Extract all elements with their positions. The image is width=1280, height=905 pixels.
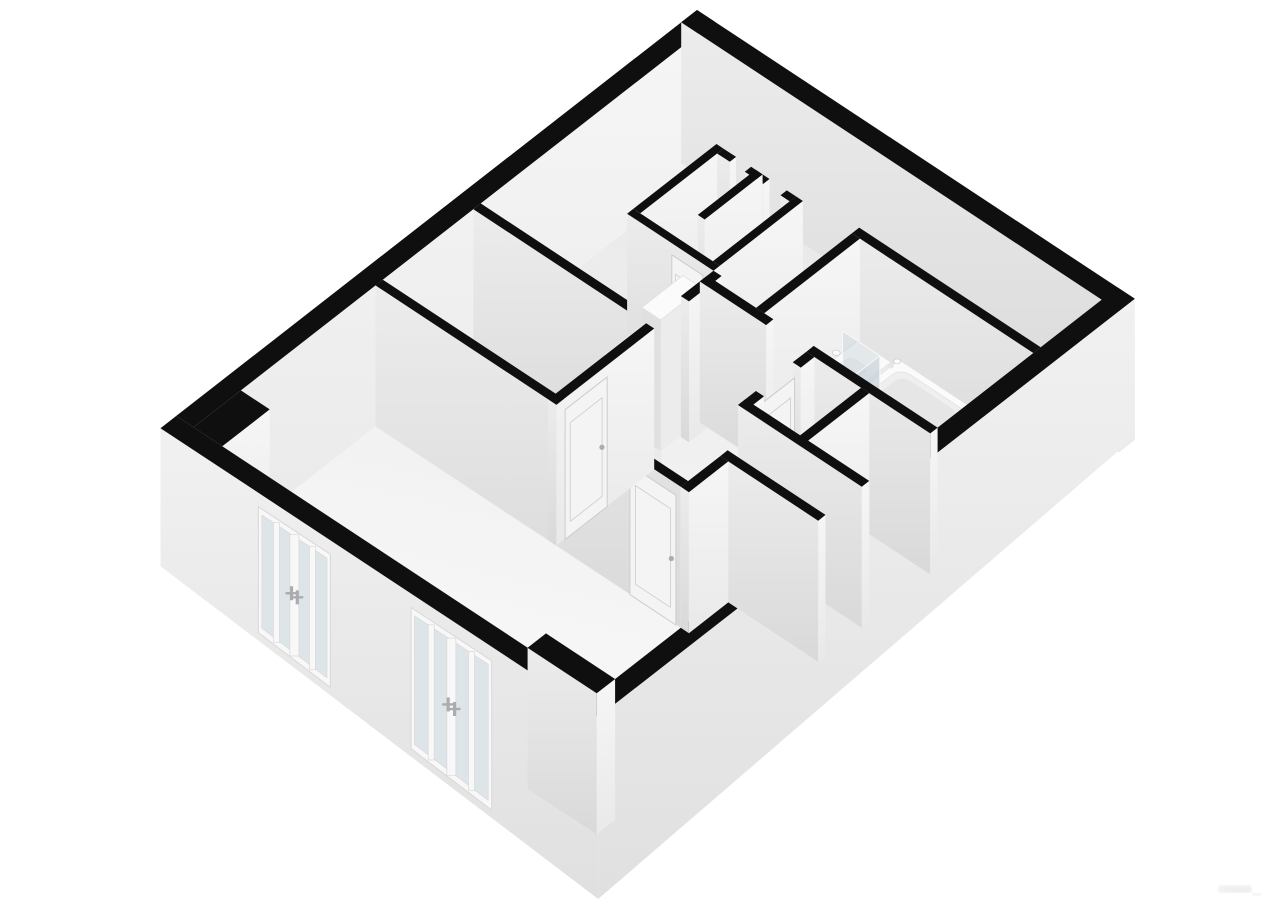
floorplan-render: 3D floor plan rendering of an apartment — [0, 0, 1280, 905]
floorplan-3d-svg: 3D floor plan rendering of an apartment — [0, 0, 1280, 905]
wall-nook-b — [681, 456, 729, 633]
